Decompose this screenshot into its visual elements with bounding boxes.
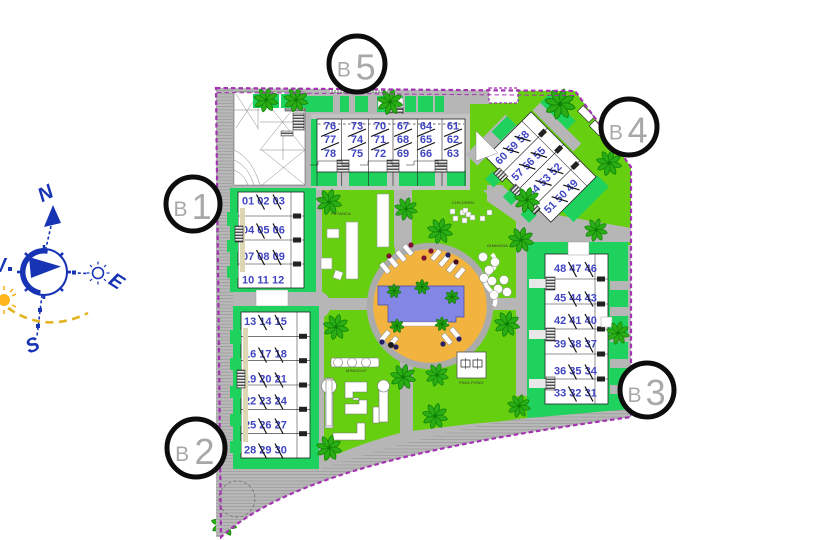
svg-text:B: B [174, 198, 188, 221]
svg-text:S: S [22, 333, 43, 359]
svg-text:N: N [34, 180, 58, 206]
svg-text:B: B [628, 384, 642, 407]
svg-text:5: 5 [356, 46, 376, 87]
svg-text:4: 4 [628, 109, 648, 150]
svg-text:GIMNASIA: GIMNASIA [487, 243, 508, 248]
svg-text:PING-PONG: PING-PONG [459, 380, 484, 385]
svg-text:78: 78 [324, 148, 336, 160]
svg-text:1: 1 [192, 186, 212, 227]
svg-text:66: 66 [420, 148, 432, 160]
svg-text:W: W [0, 255, 8, 277]
svg-text:69: 69 [397, 148, 409, 160]
svg-text:72: 72 [374, 148, 386, 160]
svg-text:MINIGOLF: MINIGOLF [346, 368, 367, 373]
svg-text:CHILDREN: CHILDREN [452, 200, 474, 205]
svg-text:3: 3 [646, 372, 666, 413]
svg-text:B: B [175, 443, 189, 466]
svg-text:10 11 12: 10 11 12 [242, 275, 284, 287]
svg-text:B: B [337, 59, 351, 82]
svg-text:63: 63 [447, 148, 459, 160]
svg-text:B: B [609, 122, 623, 145]
svg-text:75: 75 [351, 148, 363, 160]
svg-text:2: 2 [195, 431, 215, 472]
